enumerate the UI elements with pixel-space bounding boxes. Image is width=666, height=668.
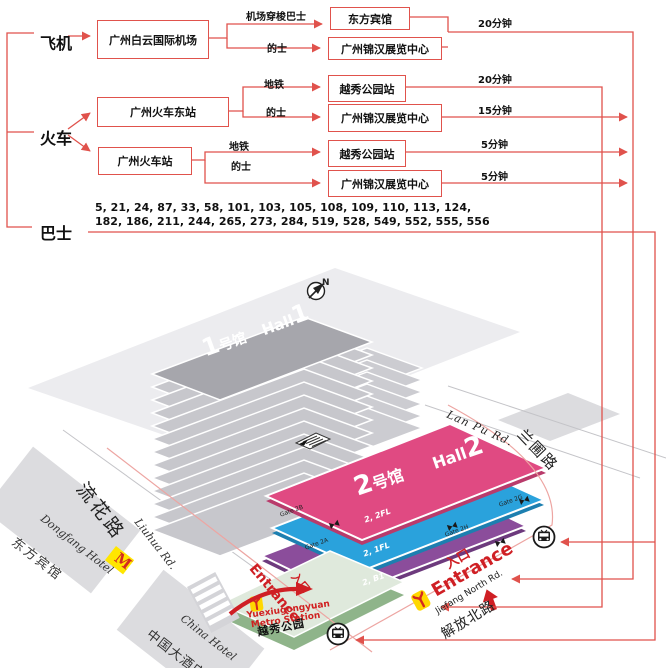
metro-logo-icon [410, 589, 432, 612]
plane-label: 飞机 [40, 30, 72, 54]
taxi-label: 的士 [266, 104, 286, 119]
yuexiu-park-station-box: 越秀公园站 [328, 140, 406, 167]
time-15min: 15分钟 [478, 102, 512, 117]
bus-label: 巴士 [40, 220, 72, 244]
dongfang-hotel-box: 东方宾馆 [330, 7, 410, 30]
time-20min: 20分钟 [478, 15, 512, 30]
compass-n-label: N [322, 278, 330, 288]
time-5min: 5分钟 [481, 168, 508, 183]
metro-label: 地铁 [229, 138, 249, 153]
shuttle-bus-label: 机场穿梭巴士 [246, 8, 306, 23]
jinhan-centre-box: 广州锦汉展览中心 [328, 170, 442, 197]
jinhan-centre-box: 广州锦汉展览中心 [328, 37, 442, 60]
jinhan-centre-box: 广州锦汉展览中心 [328, 104, 442, 132]
time-20min: 20分钟 [478, 71, 512, 86]
bus-routes-line1: 5, 21, 24, 87, 33, 58, 101, 103, 105, 10… [95, 201, 467, 215]
time-5min: 5分钟 [481, 136, 508, 151]
railway-station-box: 广州火车站 [98, 147, 192, 175]
east-railway-station-box: 广州火车东站 [97, 97, 229, 127]
bus-stop-icon [534, 527, 555, 548]
bus-routes: 5, 21, 24, 87, 33, 58, 101, 103, 105, 10… [95, 201, 467, 229]
taxi-label: 的士 [267, 40, 287, 55]
train-label: 火车 [40, 125, 72, 149]
bus-stop-icon [328, 624, 349, 645]
taxi-label: 的士 [231, 158, 251, 173]
airport-box: 广州白云国际机场 [97, 20, 209, 59]
metro-label: 地铁 [264, 76, 284, 91]
page: 飞机 火车 巴士 广州白云国际机场 东方宾馆 广州锦汉展览中心 广州火车东站 越… [0, 0, 666, 668]
yuexiu-park-station-box: 越秀公园站 [328, 75, 406, 102]
bus-routes-line2: 182, 186, 211, 244, 265, 273, 284, 519, … [95, 215, 467, 229]
